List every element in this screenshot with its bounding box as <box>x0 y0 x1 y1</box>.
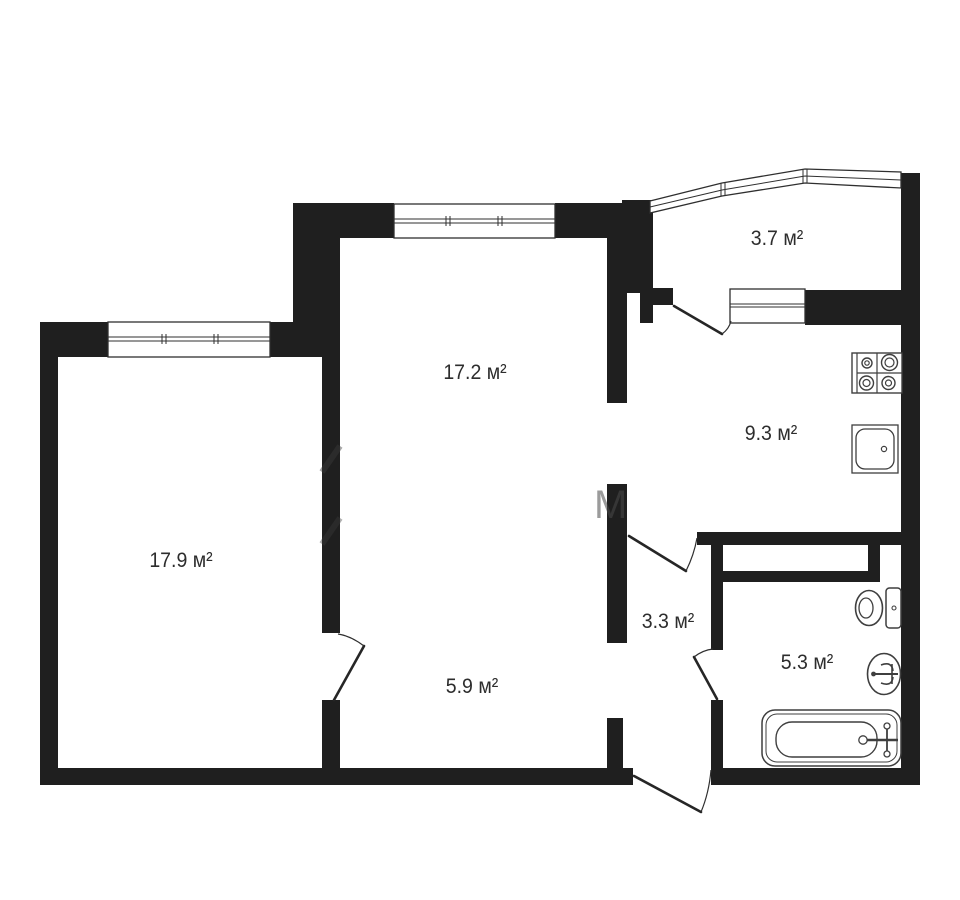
wall-balcony-stub <box>653 288 673 305</box>
wall-kitchen-bottom <box>697 532 901 545</box>
watermark-letter: М <box>594 483 627 527</box>
fixtures <box>762 353 902 766</box>
wall-bedroom-divider-upper <box>322 357 340 633</box>
floor-plan: М <box>0 0 960 900</box>
room-label-hallway: 3.3 м² <box>642 610 695 634</box>
room-label-living: 17.2 м² <box>443 361 506 385</box>
wall-outer-bottom-right <box>711 768 920 785</box>
toilet-icon <box>856 588 902 628</box>
window-living-icon <box>394 204 555 238</box>
door-kitchen-icon <box>629 536 697 571</box>
door-bedroom-icon <box>334 634 364 700</box>
door-entrance-icon <box>634 770 711 812</box>
stove-icon <box>852 353 902 393</box>
wall-bedroom-divider-lower <box>322 700 340 768</box>
room-label-corridor: 5.9 м² <box>446 675 499 699</box>
wall-bathroom-left-upper <box>711 532 723 650</box>
balcony-glazing-icon <box>650 169 901 213</box>
wall-bathroom-inner-cap <box>868 545 880 582</box>
wall-bathroom-inner <box>723 571 880 582</box>
window-bedroom-icon <box>108 322 270 357</box>
window-kitchen-balcony-icon <box>730 289 805 323</box>
wall-balcony-partition <box>805 290 901 325</box>
floor-plan-drawing: М <box>0 0 960 900</box>
windows <box>108 169 901 357</box>
wall-outer-bottom-left <box>40 768 633 785</box>
room-label-kitchen: 9.3 м² <box>745 422 798 446</box>
wall-balcony-left-b <box>640 200 653 323</box>
wall-bedroom-top-a <box>40 322 108 357</box>
washbasin-icon <box>868 654 901 695</box>
room-label-bedroom: 17.9 м² <box>149 549 212 573</box>
wall-corner-column <box>293 238 340 357</box>
wall-outer-left <box>40 322 58 785</box>
door-balcony-icon <box>674 306 731 334</box>
wall-bathroom-left-lower <box>711 700 723 768</box>
wall-bedroom-top-b <box>270 322 295 357</box>
room-label-balcony: 3.7 м² <box>751 227 804 251</box>
door-bathroom-icon <box>694 649 717 699</box>
wall-hall-stub <box>607 718 623 768</box>
wall-living-top-a <box>293 203 394 238</box>
wall-balcony-left-a <box>622 200 640 293</box>
bathtub-icon <box>762 710 901 766</box>
wall-outer-right <box>901 173 920 785</box>
kitchen-sink-icon <box>852 425 898 473</box>
doors <box>334 306 731 812</box>
room-label-bathroom: 5.3 м² <box>781 651 834 675</box>
